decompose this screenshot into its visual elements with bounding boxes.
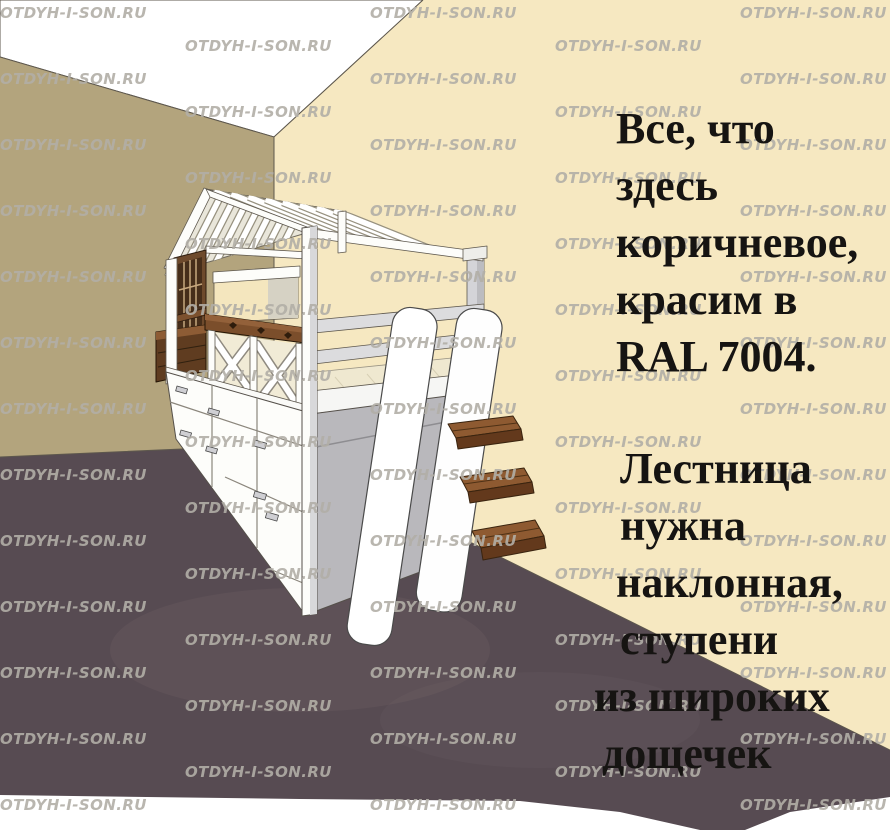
note-line: дощечек [594,725,843,782]
note-line: коричневое, [616,214,858,271]
bed-front-left-post [166,258,177,384]
rear-post-cap [463,246,487,261]
design-render-page: OTDYH-I-SON.RUOTDYH-I-SON.RUOTDYH-I-SON.… [0,0,890,830]
note-line: Лестница [594,440,843,497]
note-line: наклонная, [594,554,843,611]
note-line: ступени [594,611,843,668]
note-line: красим в [616,271,858,328]
lattice-post [208,330,215,384]
lattice-post [250,336,257,397]
note-line: из широких [594,668,843,725]
note-line: здесь [616,157,858,214]
note-line: Все, что [616,100,858,157]
note-line: нужна [594,497,843,554]
bed-front-right-post [302,226,317,616]
note-line: RAL 7004. [616,328,858,385]
paint-note: Все, чтоздеськоричневое,красим вRAL 7004… [616,100,858,385]
rear-gable-post [338,211,346,253]
frame-opening-shade [268,276,298,319]
ladder-note: Лестницанужнанаклонная,ступенииз широких… [594,440,843,782]
